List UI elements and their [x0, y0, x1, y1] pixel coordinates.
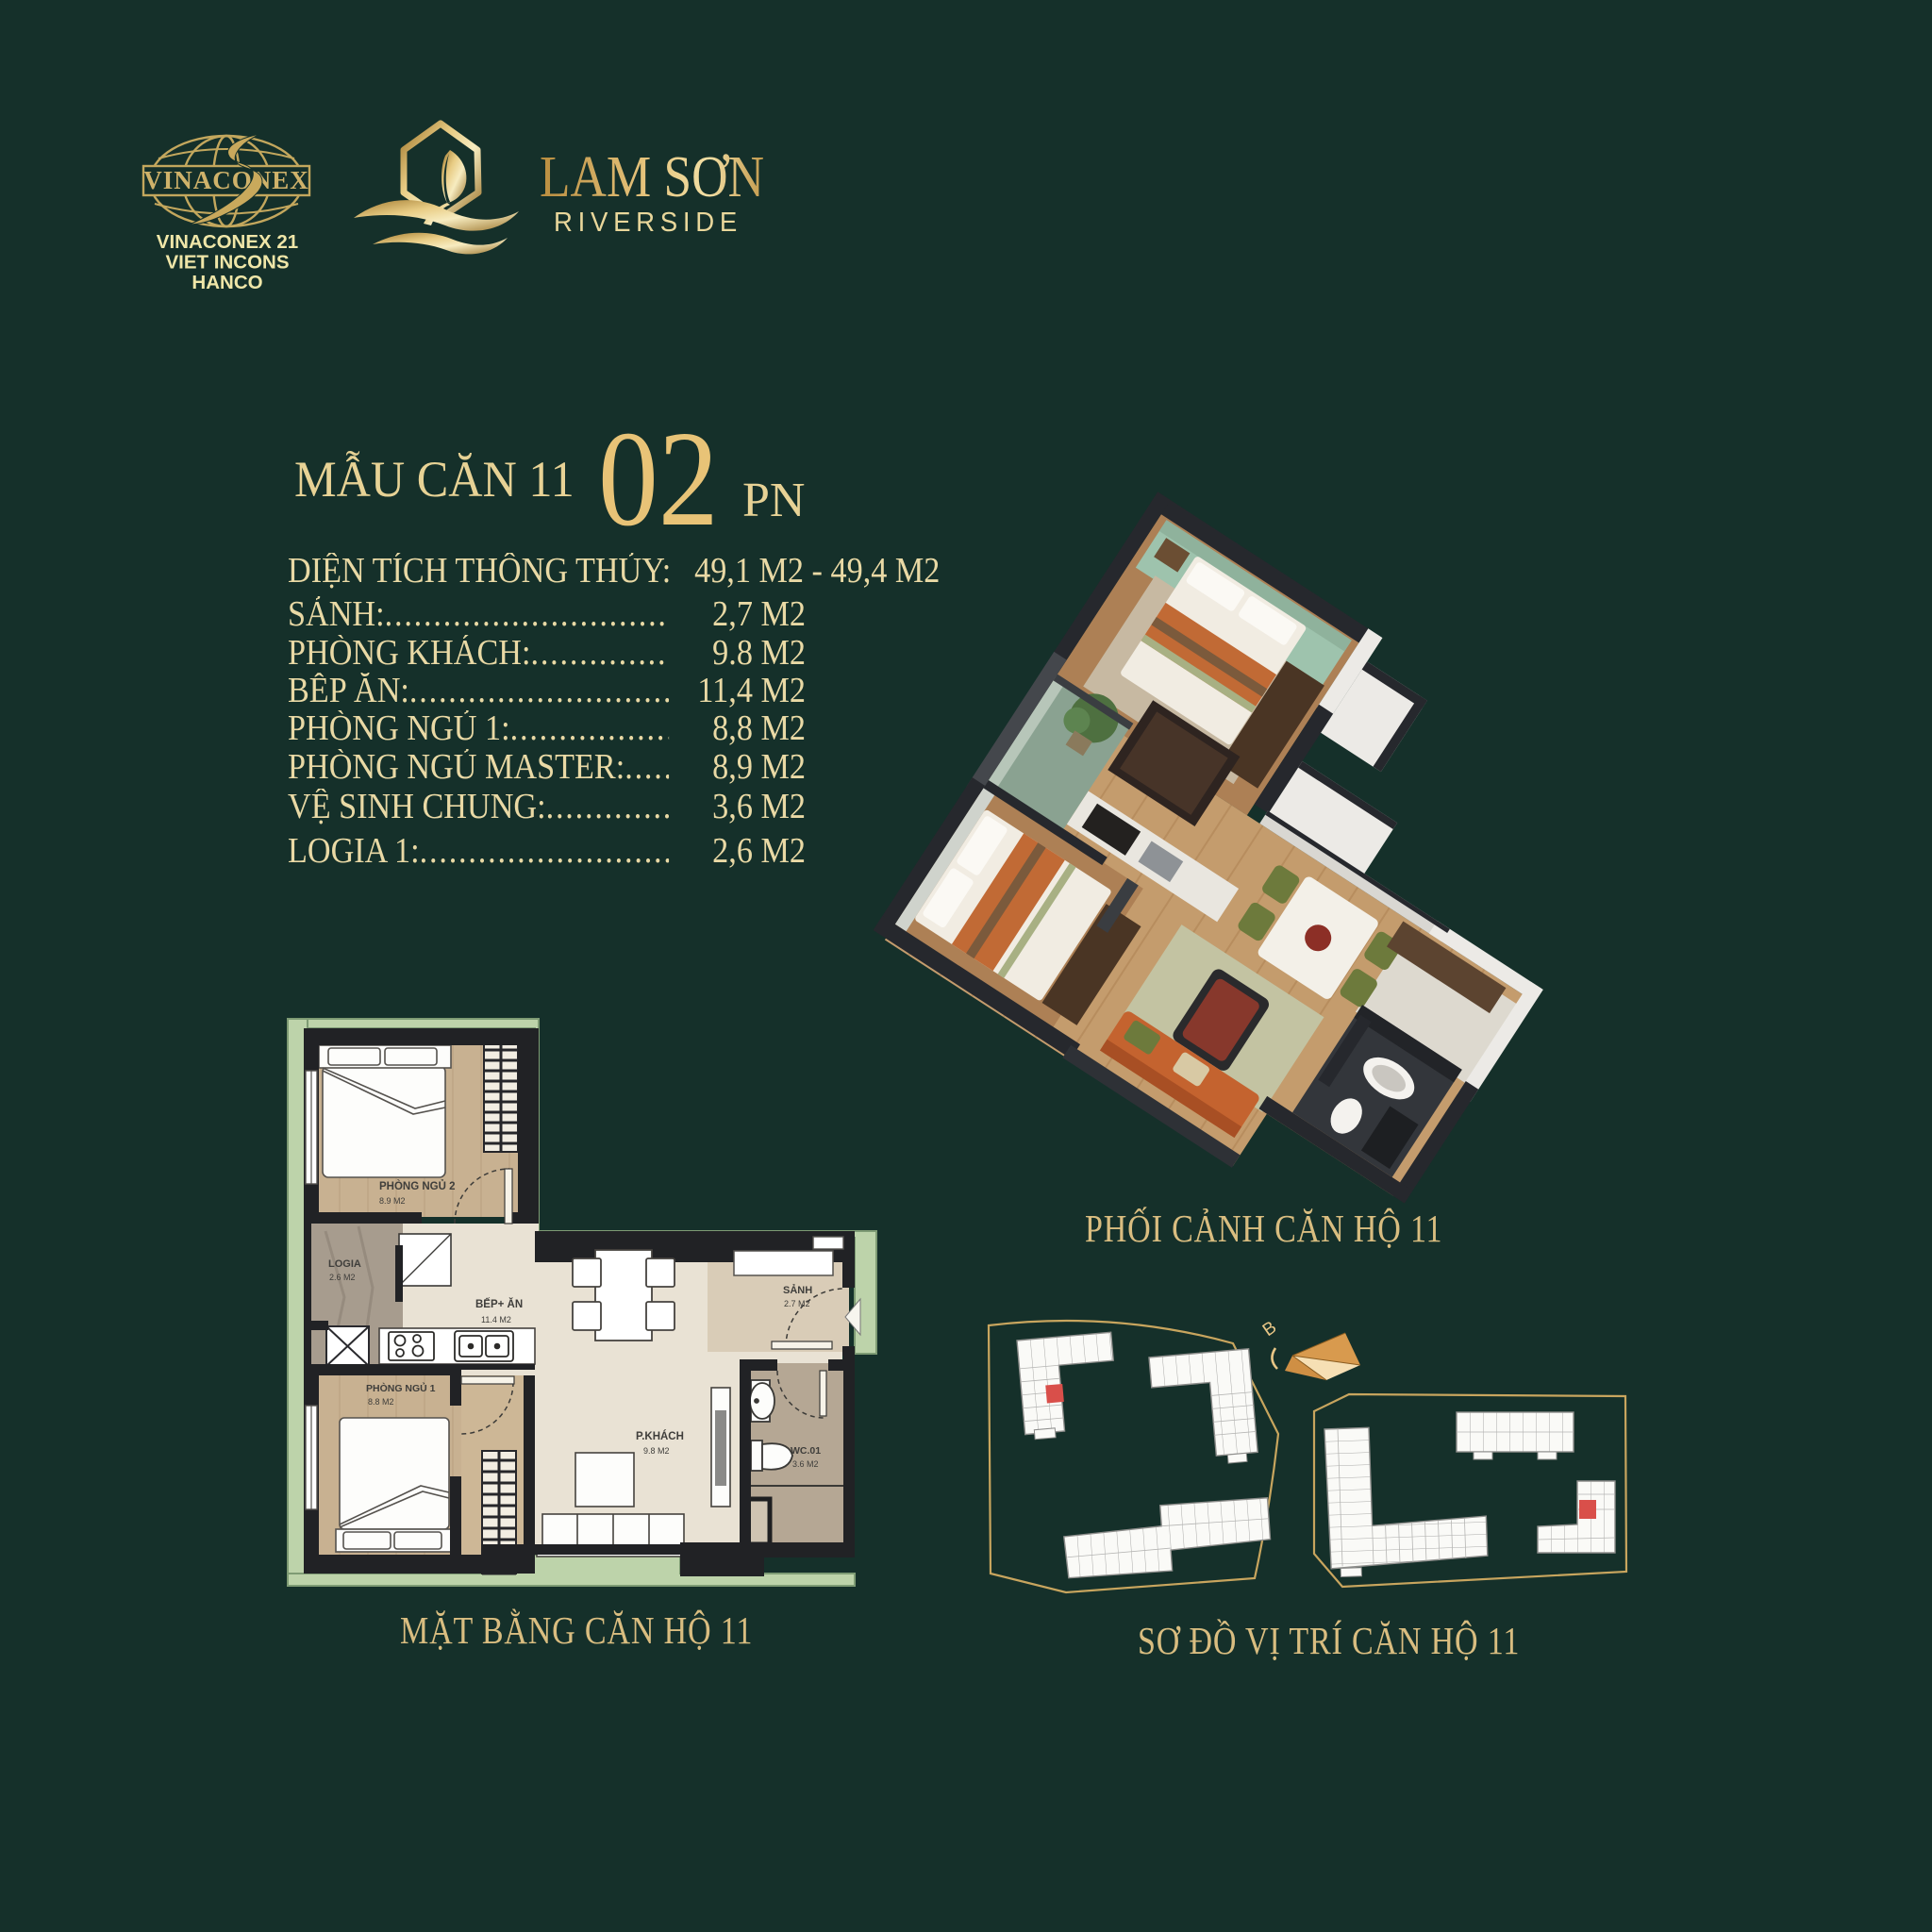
svg-text:WC.01: WC.01: [791, 1445, 821, 1457]
svg-text:2.7 M2: 2.7 M2: [784, 1299, 810, 1308]
svg-text:8.9 M2: 8.9 M2: [379, 1196, 406, 1206]
svg-text:LAM SƠN: LAM SƠN: [540, 145, 764, 209]
svg-text:VINACONEX 21: VINACONEX 21: [157, 231, 298, 253]
svg-text:RIVERSIDE: RIVERSIDE: [554, 208, 742, 238]
svg-text:VIET INCONS: VIET INCONS: [166, 252, 290, 274]
svg-text:3.6 M2: 3.6 M2: [792, 1459, 819, 1469]
svg-text:PHÒNG NGỦ 1: PHÒNG NGỦ 1: [366, 1382, 436, 1394]
svg-text:PHÒNG NGỦ 2: PHÒNG NGỦ 2: [379, 1180, 456, 1192]
svg-text:B: B: [1259, 1318, 1280, 1341]
svg-text:HANCO: HANCO: [192, 272, 262, 293]
svg-text:8.8 M2: 8.8 M2: [368, 1397, 394, 1407]
svg-text:BẾP+ ĂN: BẾP+ ĂN: [475, 1298, 523, 1310]
svg-text:11.4 M2: 11.4 M2: [481, 1315, 511, 1324]
svg-text:9.8 M2: 9.8 M2: [643, 1446, 670, 1456]
svg-text:SẢNH: SẢNH: [783, 1284, 812, 1296]
svg-text:2.6 M2: 2.6 M2: [329, 1273, 356, 1282]
svg-text:LOGIA: LOGIA: [328, 1258, 361, 1270]
svg-text:VINACONEX: VINACONEX: [143, 166, 309, 194]
svg-text:P.KHÁCH: P.KHÁCH: [636, 1430, 684, 1442]
